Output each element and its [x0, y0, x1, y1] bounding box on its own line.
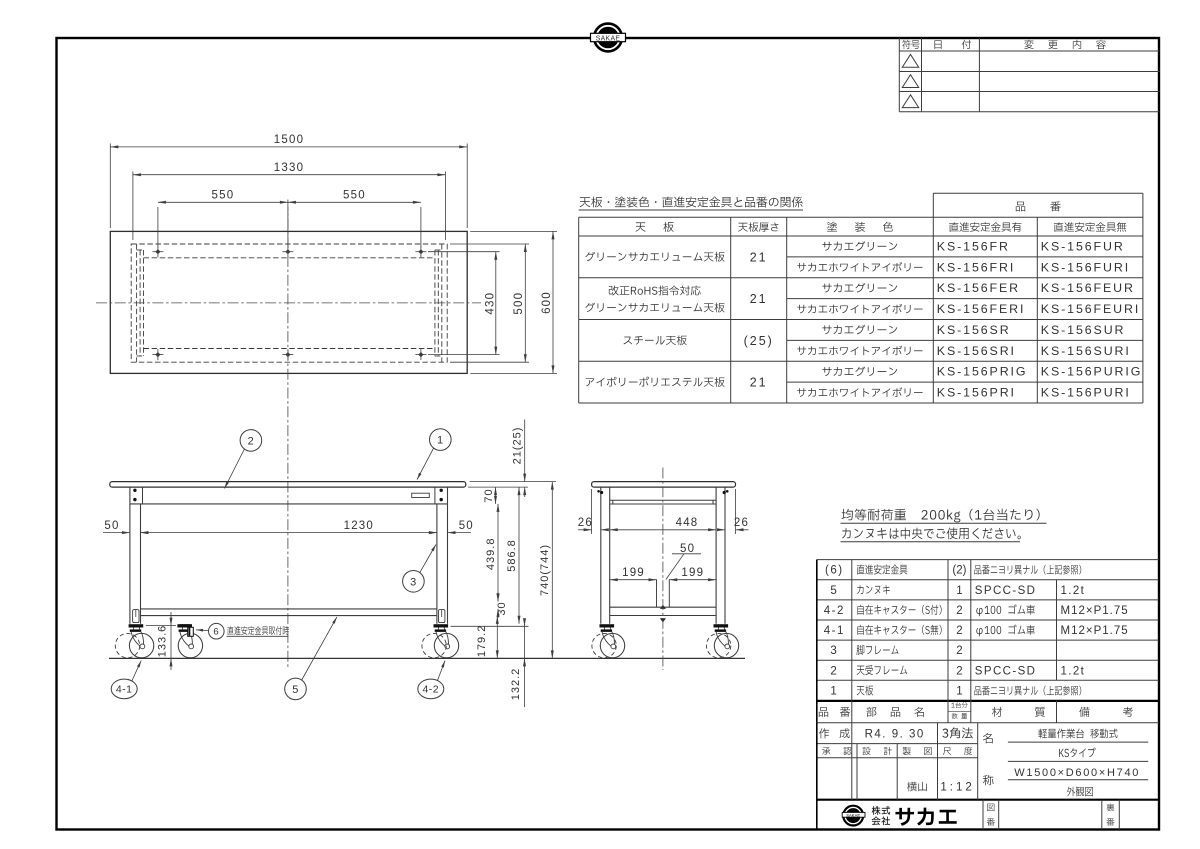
svg-text:(2): (2): [952, 565, 966, 577]
svg-text:50: 50: [680, 543, 695, 555]
svg-text:1230: 1230: [344, 520, 374, 532]
svg-text:1.2t: 1.2t: [1061, 665, 1086, 677]
svg-text:199: 199: [681, 567, 704, 579]
svg-text:SAKAE: SAKAE: [596, 35, 621, 42]
svg-text:132.2: 132.2: [510, 668, 522, 701]
svg-text:4-1: 4-1: [116, 684, 133, 696]
svg-text:1: 1: [956, 585, 962, 597]
svg-text:KS-156FURI: KS-156FURI: [1041, 260, 1130, 274]
svg-text:M12×P1.75: M12×P1.75: [1061, 605, 1129, 617]
svg-text:SPCC-SD: SPCC-SD: [975, 665, 1037, 677]
svg-text:KS-156SRI: KS-156SRI: [937, 344, 1016, 358]
svg-text:550: 550: [212, 190, 235, 202]
svg-text:448: 448: [676, 517, 699, 529]
svg-text:SAKAE: SAKAE: [846, 813, 860, 818]
svg-text:KS-156FER: KS-156FER: [937, 281, 1020, 295]
svg-text:50: 50: [459, 520, 474, 532]
svg-text:3: 3: [410, 576, 417, 588]
svg-text:21(25): 21(25): [511, 427, 523, 465]
svg-text:KS-156FUR: KS-156FUR: [1041, 239, 1125, 253]
svg-text:2: 2: [830, 665, 838, 677]
svg-text:4-2: 4-2: [824, 605, 845, 617]
svg-text:KS-156PRI: KS-156PRI: [937, 386, 1016, 400]
svg-text:KS-156PURI: KS-156PURI: [1041, 386, 1131, 400]
svg-text:50: 50: [104, 520, 119, 532]
svg-text:4-1: 4-1: [824, 625, 845, 637]
svg-text:2: 2: [956, 625, 962, 637]
svg-text:2: 2: [248, 435, 255, 447]
svg-text:2: 2: [956, 665, 962, 677]
svg-text:SPCC-SD: SPCC-SD: [975, 585, 1037, 597]
svg-text:21: 21: [750, 250, 768, 264]
svg-text:KS-156PURIG: KS-156PURIG: [1041, 365, 1142, 379]
svg-text:179.2: 179.2: [476, 625, 488, 658]
svg-text:KS-156SURI: KS-156SURI: [1041, 344, 1131, 358]
svg-text:439.8: 439.8: [485, 538, 497, 571]
svg-text:430: 430: [485, 292, 497, 315]
svg-text:KS-156FRI: KS-156FRI: [937, 260, 1015, 274]
svg-text:1:12: 1:12: [940, 782, 974, 794]
svg-text:4-2: 4-2: [422, 684, 439, 696]
svg-text:550: 550: [343, 190, 366, 202]
svg-text:2: 2: [956, 605, 962, 617]
svg-text:5: 5: [830, 585, 838, 597]
svg-text:1.2t: 1.2t: [1061, 585, 1086, 597]
svg-text:KS-156FEUR: KS-156FEUR: [1041, 281, 1135, 295]
svg-text:21: 21: [750, 292, 768, 306]
svg-text:M12×P1.75: M12×P1.75: [1061, 625, 1129, 637]
svg-text:1: 1: [437, 435, 444, 447]
svg-text:KS-156SR: KS-156SR: [937, 323, 1011, 337]
svg-text:26: 26: [734, 517, 749, 529]
svg-text:30: 30: [496, 601, 508, 615]
svg-text:KS-156PRIG: KS-156PRIG: [937, 365, 1028, 379]
svg-text:70: 70: [483, 488, 495, 502]
svg-text:KS-156SUR: KS-156SUR: [1041, 323, 1126, 337]
svg-text:740(744): 740(744): [539, 544, 551, 596]
svg-text:500: 500: [513, 292, 525, 315]
svg-text:KS-156FERI: KS-156FERI: [937, 302, 1026, 316]
svg-text:2: 2: [956, 645, 962, 657]
svg-text:KS-156FEURI: KS-156FEURI: [1041, 302, 1140, 316]
svg-text:21: 21: [750, 376, 768, 390]
svg-text:(25): (25): [744, 334, 774, 348]
svg-text:1330: 1330: [274, 162, 304, 174]
svg-text:3: 3: [830, 645, 838, 657]
svg-text:586.8: 586.8: [506, 539, 518, 572]
svg-text:600: 600: [541, 291, 553, 314]
svg-text:1: 1: [830, 686, 838, 698]
svg-text:1500: 1500: [274, 134, 304, 146]
svg-text:(6): (6): [825, 565, 844, 577]
svg-text:133.6: 133.6: [157, 625, 169, 658]
svg-text:1: 1: [956, 686, 962, 698]
svg-text:KS-156FR: KS-156FR: [937, 239, 1010, 253]
svg-text:R4. 9. 30: R4. 9. 30: [865, 729, 925, 741]
svg-text:W1500×D600×H740: W1500×D600×H740: [1014, 767, 1140, 779]
svg-text:6: 6: [213, 627, 219, 638]
svg-text:26: 26: [578, 517, 593, 529]
svg-text:5: 5: [292, 684, 299, 696]
svg-text:199: 199: [622, 567, 645, 579]
